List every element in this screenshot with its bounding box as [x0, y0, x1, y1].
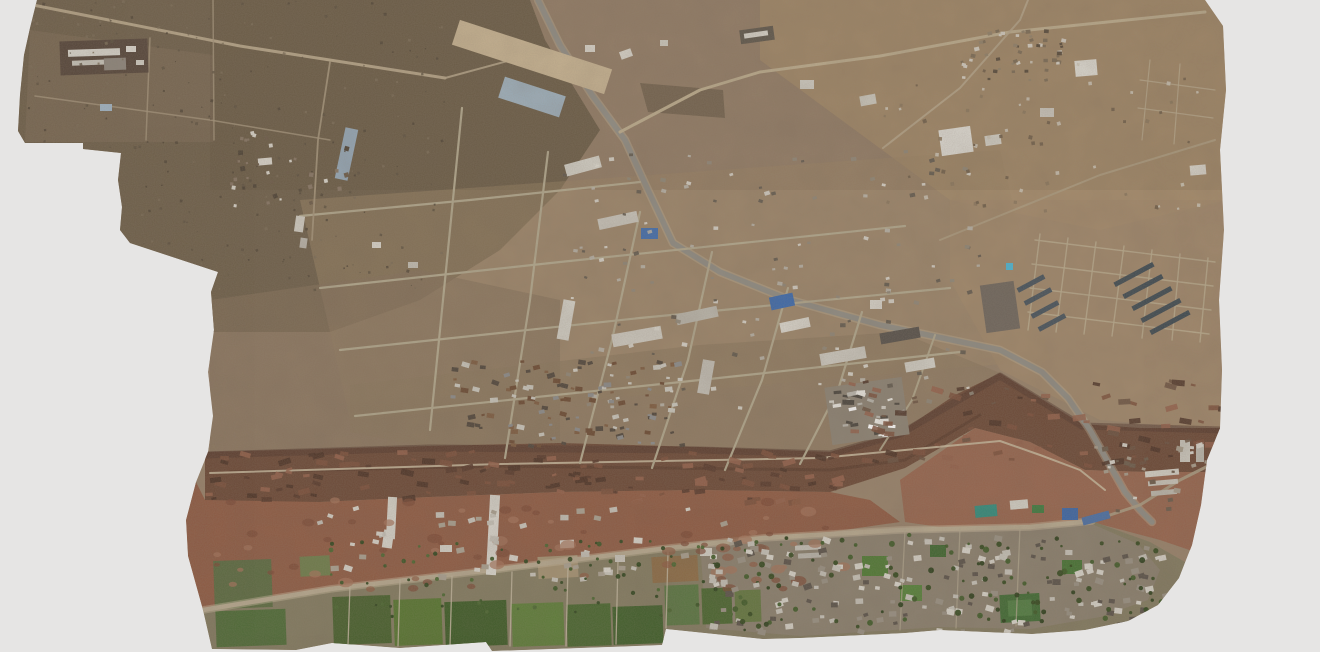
orthomosaic-viewport — [0, 0, 1320, 652]
aerial-orthomosaic-image — [0, 0, 1320, 652]
